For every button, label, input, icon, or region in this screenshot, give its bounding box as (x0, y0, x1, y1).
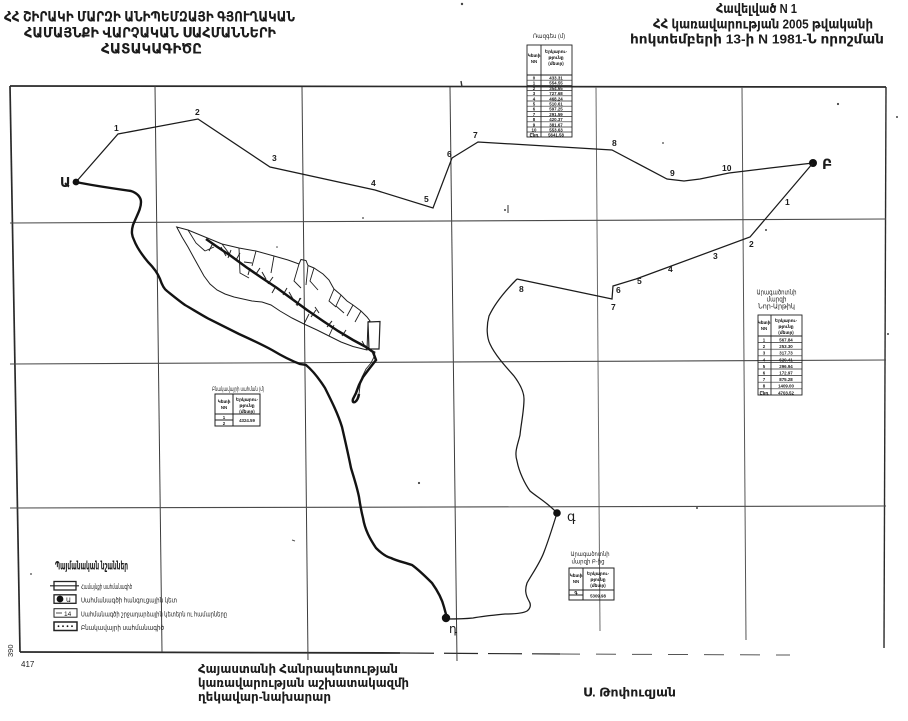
svg-text:3: 3 (272, 153, 277, 163)
svg-text:5: 5 (637, 276, 642, 286)
svg-text:875.28: 875.28 (779, 377, 793, 382)
svg-text:8: 8 (519, 284, 524, 294)
svg-text:567.84: 567.84 (779, 338, 793, 343)
svg-text:5309.98: 5309.98 (590, 594, 606, 599)
svg-text:Երկարու-: Երկարու- (775, 318, 798, 323)
svg-text:5641.58: 5641.58 (548, 133, 564, 138)
svg-text:NN: NN (573, 579, 579, 584)
svg-text:(մետր): (մետր) (239, 409, 255, 414)
svg-text:գ: գ (567, 509, 576, 524)
svg-text:ՀՀ ՇԻՐԱԿԻ ՄԱՐԶԻ ԱՆԻՊԵՄԶԱՅԻ ԳՅՈ: ՀՀ ՇԻՐԱԿԻ ՄԱՐԶԻ ԱՆԻՊԵՄԶԱՅԻ ԳՅՈՒՂԱԿԱՆ (4, 9, 295, 25)
svg-text:(մետր): (մետր) (778, 330, 794, 335)
svg-text:Ս. Թոփուզյան: Ս. Թոփուզյան (583, 686, 676, 700)
svg-text:Արագածոտնի: Արագածոտնի (571, 552, 610, 558)
svg-text:Բ: Բ (822, 156, 832, 172)
svg-text:1: 1 (785, 197, 790, 207)
svg-text:ՀՀ կառավարության 2005 թվականի: ՀՀ կառավարության 2005 թվականի (653, 17, 873, 32)
svg-text:Ընդ: Ընդ (529, 133, 539, 138)
svg-text:ՀԱՄԱՅՆՔԻ ՎԱՐՉԱԿԱՆ ՍԱՀՄԱՆՆԵՐԻ: ՀԱՄԱՅՆՔԻ ՎԱՐՉԱԿԱՆ ՍԱՀՄԱՆՆԵՐԻ (24, 25, 277, 41)
svg-text:Ա: Ա (66, 597, 71, 604)
svg-text:Արագածոտնի: Արագածոտնի (757, 290, 797, 297)
svg-text:Կետի: Կետի (218, 399, 231, 404)
svg-text:Հավելված N 1: Հավելված N 1 (716, 1, 797, 16)
svg-text:Սահմանագծի հանգուցային կետ: Սահմանագծի հանգուցային կետ (81, 598, 177, 605)
svg-text:NN: NN (761, 326, 767, 331)
svg-text:Համայնքի սահմանագիծ: Համայնքի սահմանագիծ (81, 584, 132, 591)
svg-text:դ: դ (449, 622, 457, 636)
svg-text:Սահմանագծի շրջադարձային կետերն: Սահմանագծի շրջադարձային կետերն ու համարն… (81, 612, 227, 619)
svg-text:6: 6 (616, 285, 621, 295)
svg-text:253.30: 253.30 (779, 344, 793, 349)
svg-text:8: 8 (612, 138, 617, 148)
svg-text:4703.52: 4703.52 (778, 390, 794, 395)
svg-text:14: 14 (64, 611, 72, 618)
svg-text:ՀԱՏԱԿԱԳԻԾԸ: ՀԱՏԱԿԱԳԻԾԸ (101, 41, 202, 57)
svg-text:2: 2 (195, 107, 200, 117)
svg-text:կառավարության աշխատակազմի: կառավարության աշխատակազմի (198, 676, 409, 690)
svg-text:մարզի Բ-ից: մարզի Բ-ից (572, 560, 605, 566)
svg-text:7: 7 (473, 130, 478, 140)
svg-text:1: 1 (114, 123, 119, 133)
svg-text:(մետր): (մետր) (548, 61, 564, 66)
svg-text:ղեկավար-նախարար: ղեկավար-նախարար (198, 690, 331, 704)
svg-text:3: 3 (713, 251, 718, 261)
svg-text:2: 2 (749, 239, 754, 249)
svg-text:417: 417 (21, 660, 35, 669)
svg-text:6: 6 (447, 149, 452, 159)
svg-text:Ընդ: Ընդ (759, 390, 769, 395)
svg-text:հոկտեմբերի 13-ի N 1981-Ն որոշմ: հոկտեմբերի 13-ի N 1981-Ն որոշման (630, 32, 884, 47)
svg-text:Կետի: Կետի (758, 320, 771, 325)
svg-text:Բնակավայրի սահմանագիծ: Բնակավայրի սահմանագիծ (81, 625, 164, 632)
svg-text:296.94: 296.94 (779, 364, 793, 369)
svg-text:Ա: Ա (60, 175, 71, 190)
svg-text:Պայմանական նշաններ: Պայմանական նշաններ (55, 560, 128, 573)
svg-text:թյունը: թյունը (239, 403, 254, 408)
svg-text:(մետր): (մետր) (590, 583, 606, 588)
svg-text:մարզի: մարզի (767, 297, 787, 304)
svg-text:172.97: 172.97 (779, 371, 793, 376)
svg-text:թյունը: թյունը (778, 324, 793, 329)
svg-text:7: 7 (611, 302, 616, 312)
svg-text:NN: NN (531, 59, 537, 64)
svg-text:թյունը: թյունը (548, 55, 563, 60)
svg-text:390: 390 (6, 644, 15, 657)
svg-text:4: 4 (668, 264, 673, 274)
svg-text:1409.00: 1409.00 (778, 384, 794, 389)
svg-text:Ռազգես (մ): Ռազգես (մ) (533, 34, 565, 40)
svg-text:թյունը: թյունը (590, 577, 605, 582)
svg-text:4: 4 (371, 178, 376, 188)
svg-text:Երկարու-: Երկարու- (545, 49, 568, 54)
svg-text:Երկարու-: Երկարու- (236, 397, 259, 402)
svg-text:Հայաստանի Հանրապետության: Հայաստանի Հանրապետության (198, 662, 398, 676)
svg-text:620.41: 620.41 (779, 357, 793, 362)
svg-text:Կետի: Կետի (528, 53, 541, 58)
svg-text:5: 5 (424, 194, 429, 204)
svg-text:Երկարու-: Երկարու- (587, 571, 610, 576)
svg-text:9: 9 (670, 168, 675, 178)
svg-text:317.73: 317.73 (779, 351, 793, 356)
svg-text:Բնակավայրի սահման (մ): Բնակավայրի սահման (մ) (212, 387, 264, 393)
svg-text:Նոր-Արթիկ: Նոր-Արթիկ (758, 304, 795, 311)
svg-text:10: 10 (722, 163, 732, 173)
svg-text:Կետի: Կետի (570, 573, 583, 578)
svg-text:NN: NN (221, 405, 227, 410)
svg-text:4324.59: 4324.59 (239, 418, 255, 423)
